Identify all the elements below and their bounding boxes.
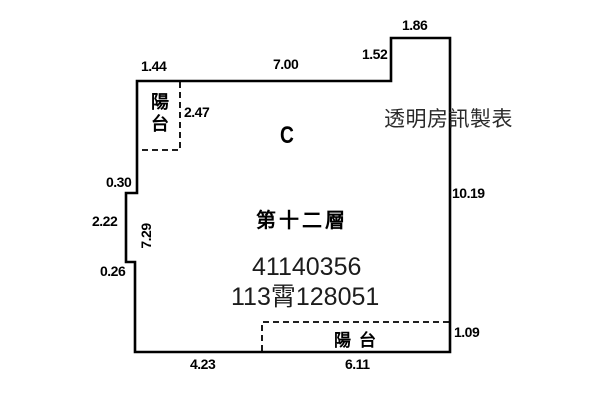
balcony-bottom-right-label: 陽台	[334, 326, 384, 351]
unit-label: C	[280, 122, 294, 150]
dim-left-step-out: 0.30	[106, 174, 131, 190]
dim-top-main-width: 7.00	[273, 56, 298, 72]
dim-bottom-right-balcony-depth: 1.09	[454, 324, 479, 340]
balcony-top-left-label: 陽台	[147, 92, 170, 136]
dim-left-notch-height: 2.22	[92, 213, 117, 229]
dim-top-right-step-height: 1.52	[362, 46, 387, 62]
dim-bottom-balcony-width: 6.11	[345, 356, 369, 372]
plan-registration-number: 113霄128051	[231, 277, 379, 313]
dim-left-step-in: 0.26	[100, 263, 125, 279]
floor-plan-canvas: 1.44 7.00 1.52 1.86 2.47 0.30 2.22 0.26 …	[0, 0, 602, 402]
dim-top-right-notch-width: 1.86	[402, 17, 427, 33]
floor-plan-drawing	[0, 0, 602, 402]
watermark-text: 透明房訊製表	[384, 103, 513, 133]
dim-top-balcony-width: 1.44	[141, 58, 166, 74]
dim-left-interior-height: 7.29	[138, 223, 154, 248]
dim-bottom-left-width: 4.23	[190, 356, 215, 372]
dim-top-left-balcony-depth: 2.47	[184, 104, 209, 120]
floor-label: 第十二層	[256, 204, 348, 233]
dim-right-height: 10.19	[452, 185, 485, 201]
